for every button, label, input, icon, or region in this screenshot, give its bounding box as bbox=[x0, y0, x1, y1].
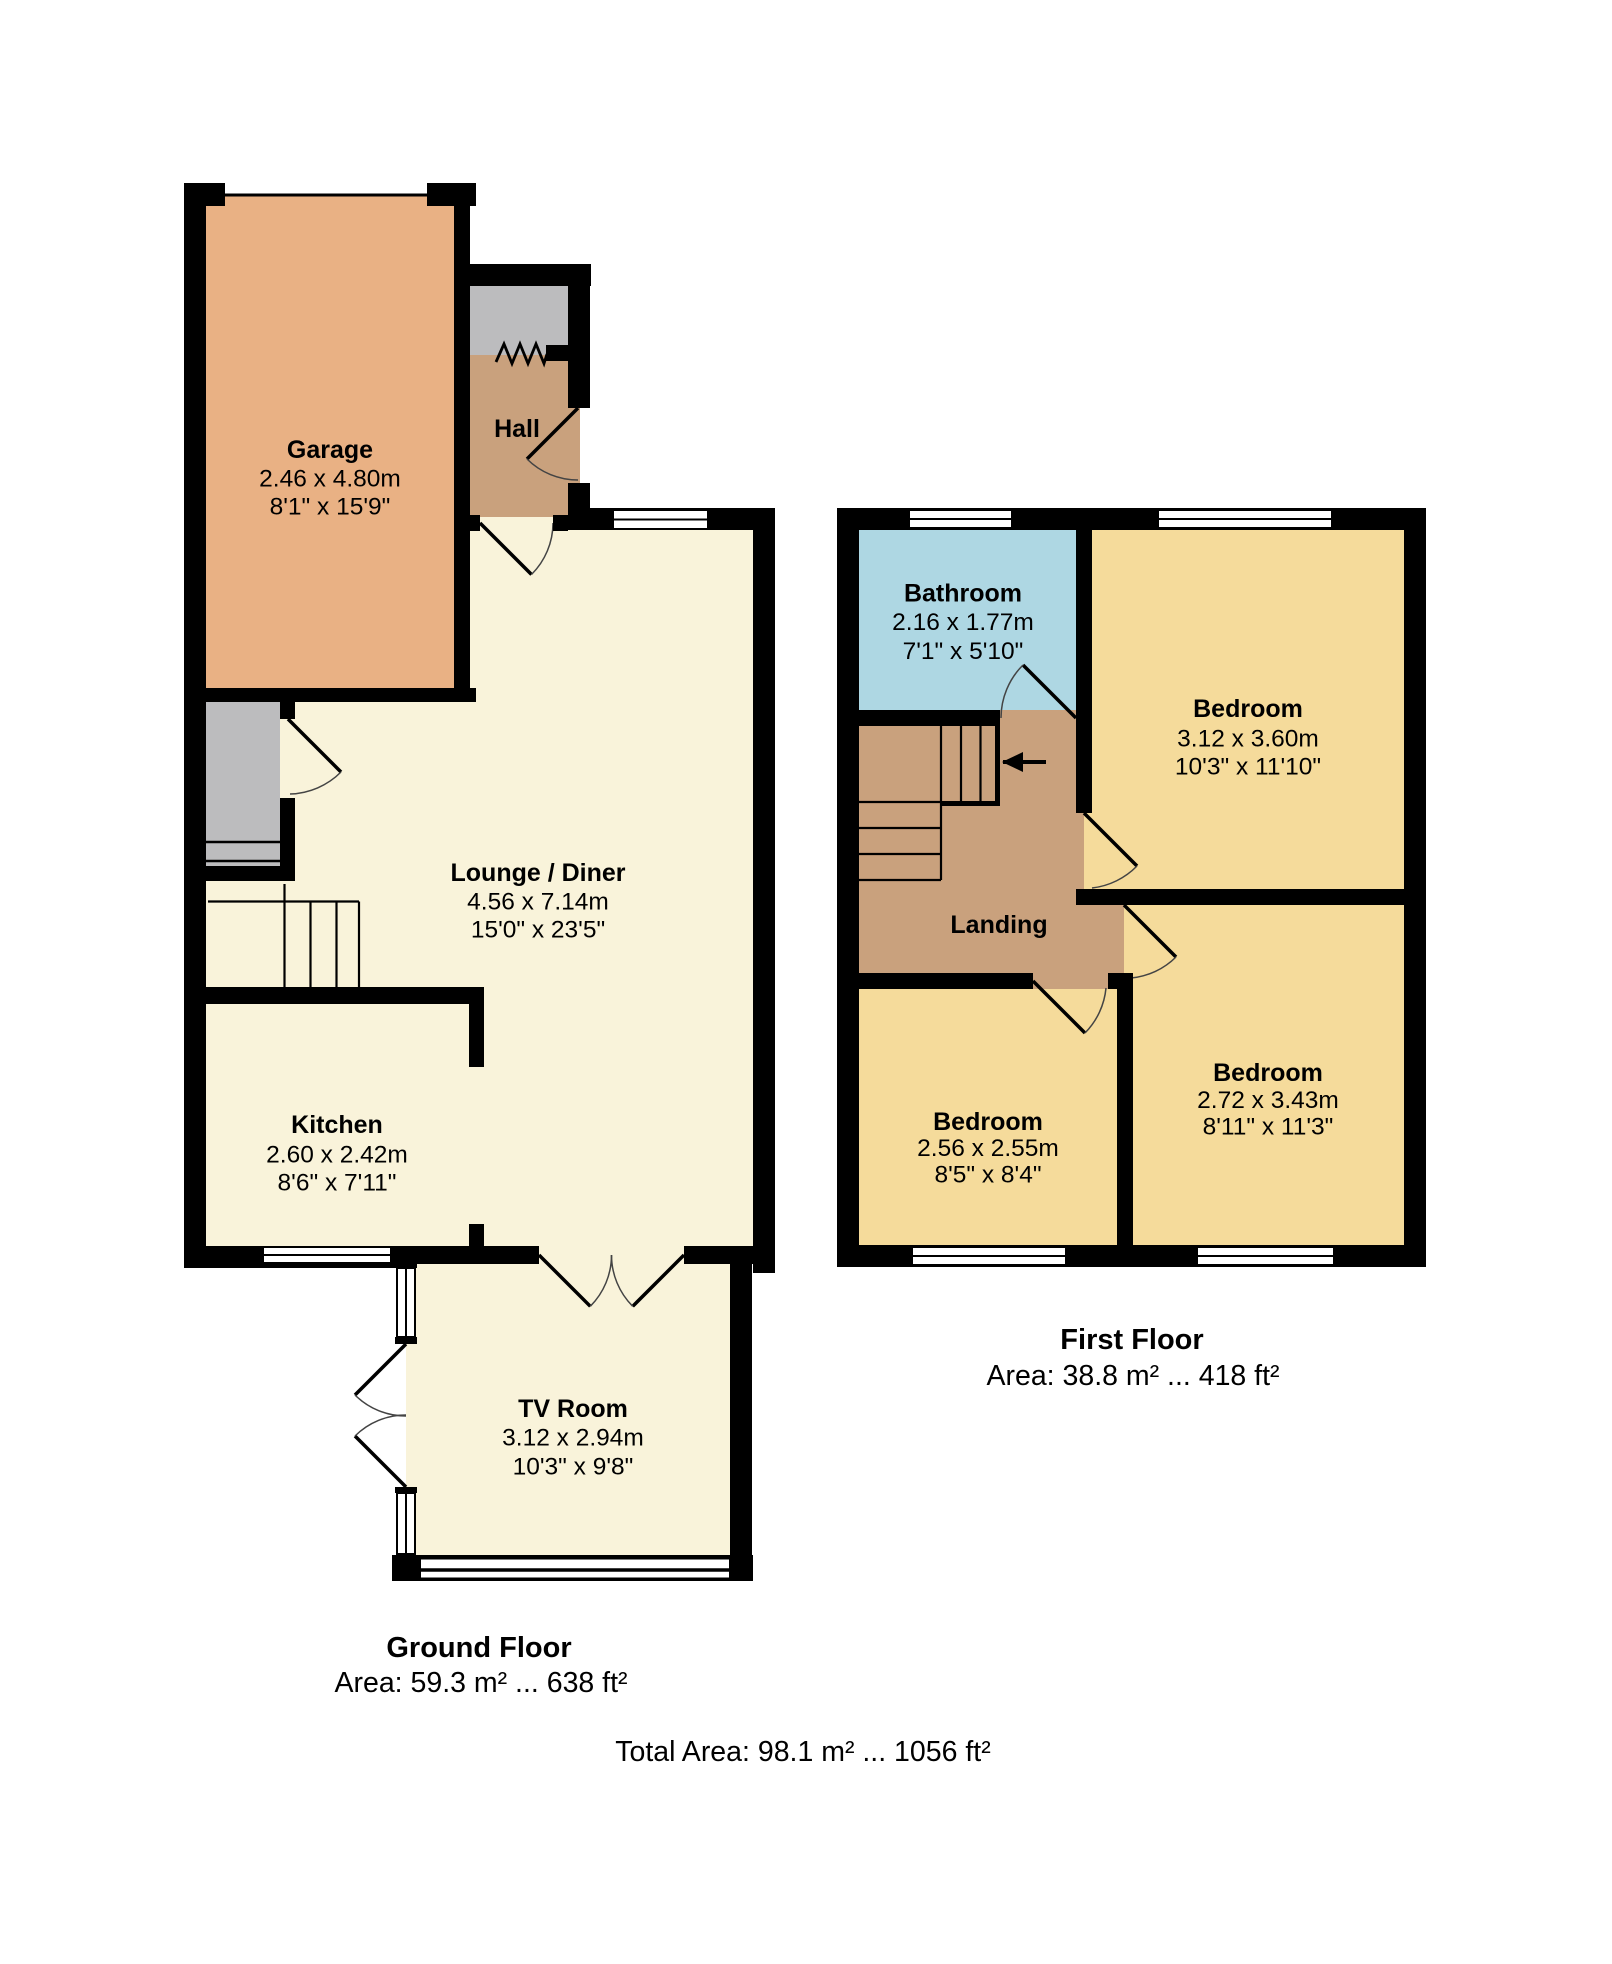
svg-text:3.12 x 3.60m: 3.12 x 3.60m bbox=[1177, 726, 1319, 753]
svg-text:Ground Floor: Ground Floor bbox=[386, 1632, 571, 1664]
svg-text:4.56 x 7.14m: 4.56 x 7.14m bbox=[467, 889, 609, 916]
svg-text:Area: 59.3 m² ... 638 ft²: Area: 59.3 m² ... 638 ft² bbox=[334, 1667, 627, 1699]
svg-text:8'11" x 11'3": 8'11" x 11'3" bbox=[1203, 1114, 1334, 1141]
svg-text:Kitchen: Kitchen bbox=[291, 1111, 383, 1139]
svg-text:Garage: Garage bbox=[287, 436, 373, 464]
svg-text:15'0" x 23'5": 15'0" x 23'5" bbox=[471, 917, 605, 944]
svg-text:First Floor: First Floor bbox=[1060, 1324, 1203, 1356]
svg-text:Landing: Landing bbox=[950, 911, 1047, 939]
svg-text:2.72 x 3.43m: 2.72 x 3.43m bbox=[1197, 1087, 1339, 1114]
svg-text:3.12 x 2.94m: 3.12 x 2.94m bbox=[502, 1425, 644, 1452]
svg-text:8'1" x 15'9": 8'1" x 15'9" bbox=[270, 494, 391, 521]
svg-text:TV Room: TV Room bbox=[518, 1395, 628, 1423]
svg-text:Hall: Hall bbox=[494, 415, 540, 443]
svg-text:Lounge / Diner: Lounge / Diner bbox=[451, 859, 626, 887]
svg-text:2.16 x 1.77m: 2.16 x 1.77m bbox=[892, 609, 1034, 636]
svg-text:Area: 38.8 m² ... 418 ft²: Area: 38.8 m² ... 418 ft² bbox=[986, 1360, 1279, 1392]
svg-text:2.56 x 2.55m: 2.56 x 2.55m bbox=[917, 1135, 1059, 1162]
svg-text:2.60 x 2.42m: 2.60 x 2.42m bbox=[266, 1142, 408, 1169]
svg-text:Bedroom: Bedroom bbox=[933, 1108, 1043, 1136]
svg-text:Total Area: 98.1 m² ... 1056 f: Total Area: 98.1 m² ... 1056 ft² bbox=[615, 1736, 990, 1768]
svg-text:10'3" x 11'10": 10'3" x 11'10" bbox=[1175, 754, 1321, 781]
svg-text:2.46 x 4.80m: 2.46 x 4.80m bbox=[259, 466, 401, 493]
svg-text:8'6" x 7'11": 8'6" x 7'11" bbox=[278, 1170, 397, 1197]
svg-text:8'5" x 8'4": 8'5" x 8'4" bbox=[934, 1162, 1041, 1189]
svg-text:10'3" x 9'8": 10'3" x 9'8" bbox=[513, 1454, 634, 1481]
svg-text:7'1" x 5'10": 7'1" x 5'10" bbox=[903, 638, 1024, 665]
svg-text:Bedroom: Bedroom bbox=[1193, 695, 1303, 723]
svg-text:Bathroom: Bathroom bbox=[904, 580, 1022, 608]
svg-text:Bedroom: Bedroom bbox=[1213, 1059, 1323, 1087]
